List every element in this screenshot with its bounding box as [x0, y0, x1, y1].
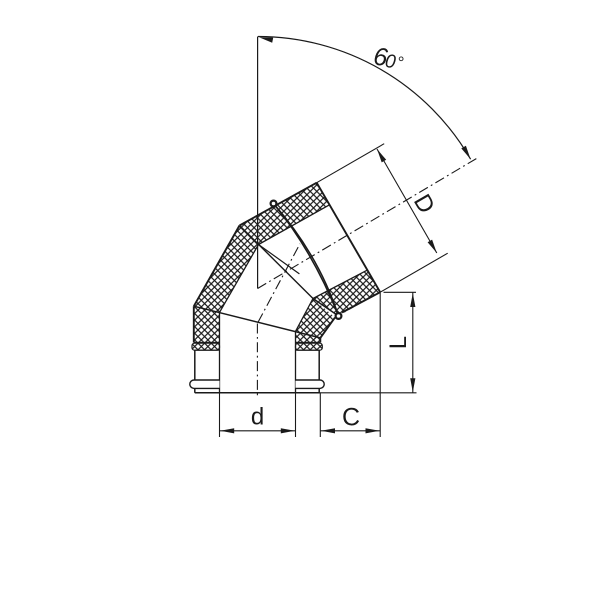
- svg-text:L: L: [385, 336, 412, 349]
- svg-text:d: d: [251, 403, 264, 430]
- svg-text:C: C: [342, 404, 360, 432]
